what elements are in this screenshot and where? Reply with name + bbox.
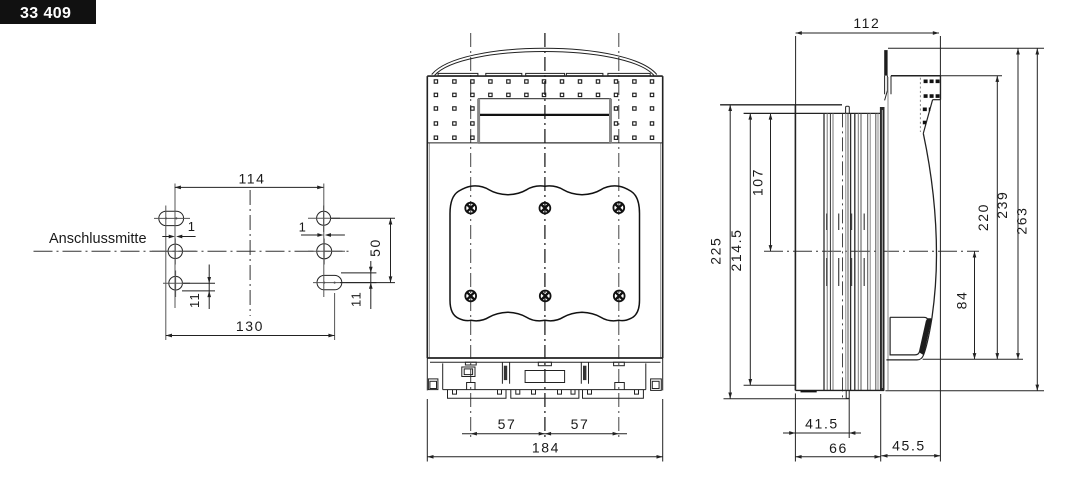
svg-text:50: 50 [367,238,383,257]
svg-text:11: 11 [349,291,364,307]
svg-text:214.5: 214.5 [728,228,744,271]
svg-text:41.5: 41.5 [805,416,839,432]
svg-text:112: 112 [853,15,880,31]
svg-text:225: 225 [708,237,724,265]
svg-text:220: 220 [975,203,991,231]
svg-text:45.5: 45.5 [892,438,926,454]
svg-text:57: 57 [571,416,590,432]
svg-text:263: 263 [1014,206,1030,234]
svg-text:66: 66 [829,440,848,456]
svg-text:33 409: 33 409 [20,5,71,22]
svg-text:184: 184 [532,440,560,456]
svg-text:11: 11 [187,292,202,308]
svg-text:Anschlussmitte: Anschlussmitte [49,231,147,247]
svg-text:1: 1 [299,220,307,235]
svg-text:107: 107 [750,168,766,196]
svg-text:114: 114 [238,171,265,187]
svg-text:130: 130 [236,318,264,334]
svg-text:239: 239 [994,191,1010,219]
svg-text:84: 84 [954,291,970,310]
svg-text:1: 1 [188,219,196,234]
svg-text:57: 57 [498,416,517,432]
